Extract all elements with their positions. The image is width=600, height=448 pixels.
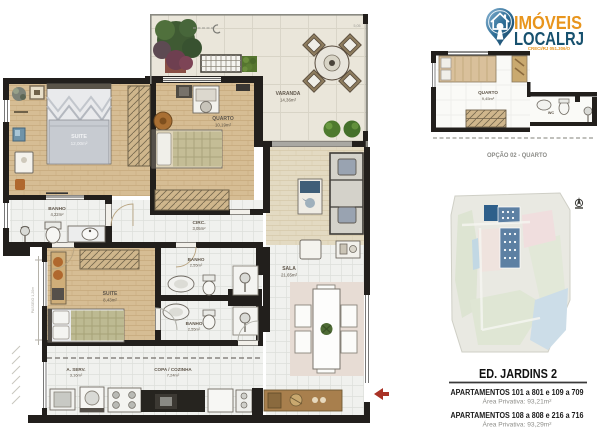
svg-text:21,65m²: 21,65m²: [281, 273, 298, 278]
svg-text:QUARTO: QUARTO: [212, 116, 234, 122]
svg-text:4,22m²: 4,22m²: [50, 212, 64, 217]
svg-text:APARTAMENTOS 101 a 801 e 109 a: APARTAMENTOS 101 a 801 e 109 a 709: [451, 388, 585, 397]
svg-text:ED. JARDINS 2: ED. JARDINS 2: [479, 367, 557, 381]
svg-text:2,55m²: 2,55m²: [188, 327, 201, 332]
svg-text:12,00m²: 12,00m²: [71, 141, 88, 146]
svg-text:CRECI/RJ 051.306/O: CRECI/RJ 051.306/O: [528, 46, 571, 51]
svg-text:2,55m²: 2,55m²: [190, 263, 203, 268]
svg-text:3,16m²: 3,16m²: [70, 373, 83, 378]
svg-text:14,36m²: 14,36m²: [280, 98, 297, 103]
svg-text:A. SERV.: A. SERV.: [66, 367, 85, 372]
svg-text:Área Privativa: 93,29m²: Área Privativa: 93,29m²: [483, 420, 553, 429]
svg-text:WC: WC: [548, 111, 555, 115]
svg-text:7,24m²: 7,24m²: [167, 373, 180, 378]
svg-text:OPÇÃO 02 - QUARTO: OPÇÃO 02 - QUARTO: [487, 152, 547, 159]
svg-text:BANHO: BANHO: [186, 321, 203, 326]
svg-text:BANHO: BANHO: [188, 257, 205, 262]
svg-text:3,05m²: 3,05m²: [192, 226, 206, 231]
svg-text:VARANDA: VARANDA: [276, 91, 301, 97]
svg-text:APARTAMENTOS 108 a 808 e 216 a: APARTAMENTOS 108 a 808 e 216 a 716: [451, 411, 585, 420]
svg-text:QUARTO: QUARTO: [478, 90, 498, 95]
svg-text:10,19m²: 10,19m²: [215, 123, 232, 128]
svg-text:COPA / COZINHA: COPA / COZINHA: [154, 367, 192, 372]
svg-text:SALA: SALA: [282, 266, 296, 272]
svg-text:PASSEIO 1,20m: PASSEIO 1,20m: [31, 287, 35, 314]
svg-text:8,43m²: 8,43m²: [103, 298, 117, 303]
svg-text:5,05: 5,05: [354, 24, 361, 28]
svg-text:Área Privativa: 93,21m²: Área Privativa: 93,21m²: [483, 397, 553, 406]
svg-text:SUITE: SUITE: [71, 134, 87, 140]
svg-text:SUITE: SUITE: [103, 291, 118, 297]
svg-text:9,45m²: 9,45m²: [482, 96, 495, 101]
